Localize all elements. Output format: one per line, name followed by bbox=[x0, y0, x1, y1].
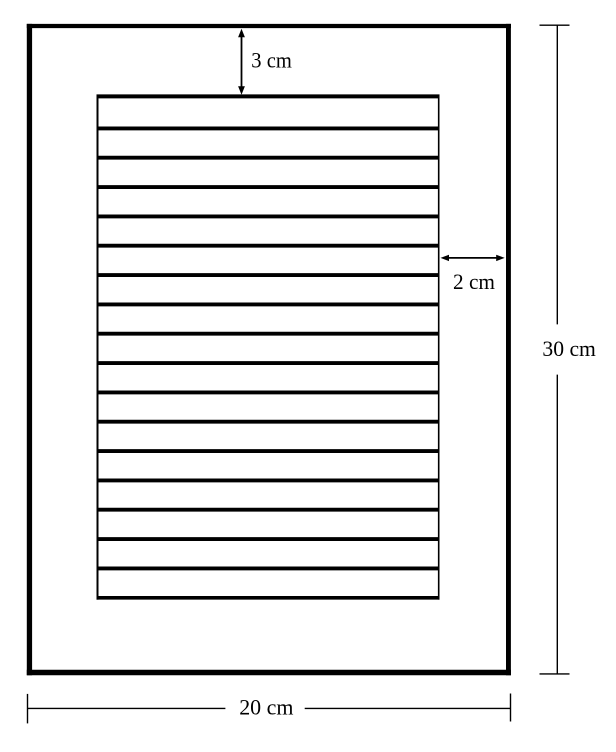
svg-text:3 cm: 3 cm bbox=[251, 48, 292, 73]
svg-text:30 cm: 30 cm bbox=[542, 336, 596, 361]
svg-text:2 cm: 2 cm bbox=[453, 269, 495, 294]
svg-text:20 cm: 20 cm bbox=[239, 695, 294, 720]
